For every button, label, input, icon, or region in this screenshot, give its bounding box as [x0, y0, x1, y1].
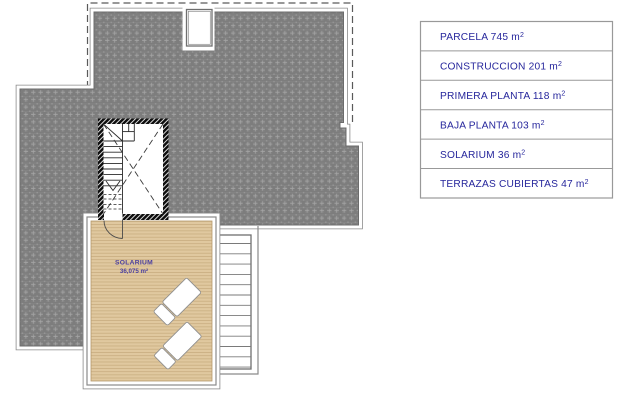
svg-text:BAJA PLANTA 103 m2: BAJA PLANTA 103 m2 [440, 120, 545, 131]
svg-text:SOLARIUM: SOLARIUM [115, 260, 153, 267]
svg-text:TERRAZAS CUBIERTAS 47 m2: TERRAZAS CUBIERTAS 47 m2 [440, 179, 589, 190]
svg-text:PARCELA 745 m2: PARCELA 745 m2 [440, 32, 524, 43]
svg-text:SOLARIUM 36 m2: SOLARIUM 36 m2 [440, 149, 525, 160]
svg-text:36,075 m²: 36,075 m² [120, 268, 148, 275]
svg-text:CONSTRUCCION 201 m2: CONSTRUCCION 201 m2 [440, 61, 562, 72]
svg-text:PRIMERA PLANTA 118 m2: PRIMERA PLANTA 118 m2 [440, 91, 565, 102]
